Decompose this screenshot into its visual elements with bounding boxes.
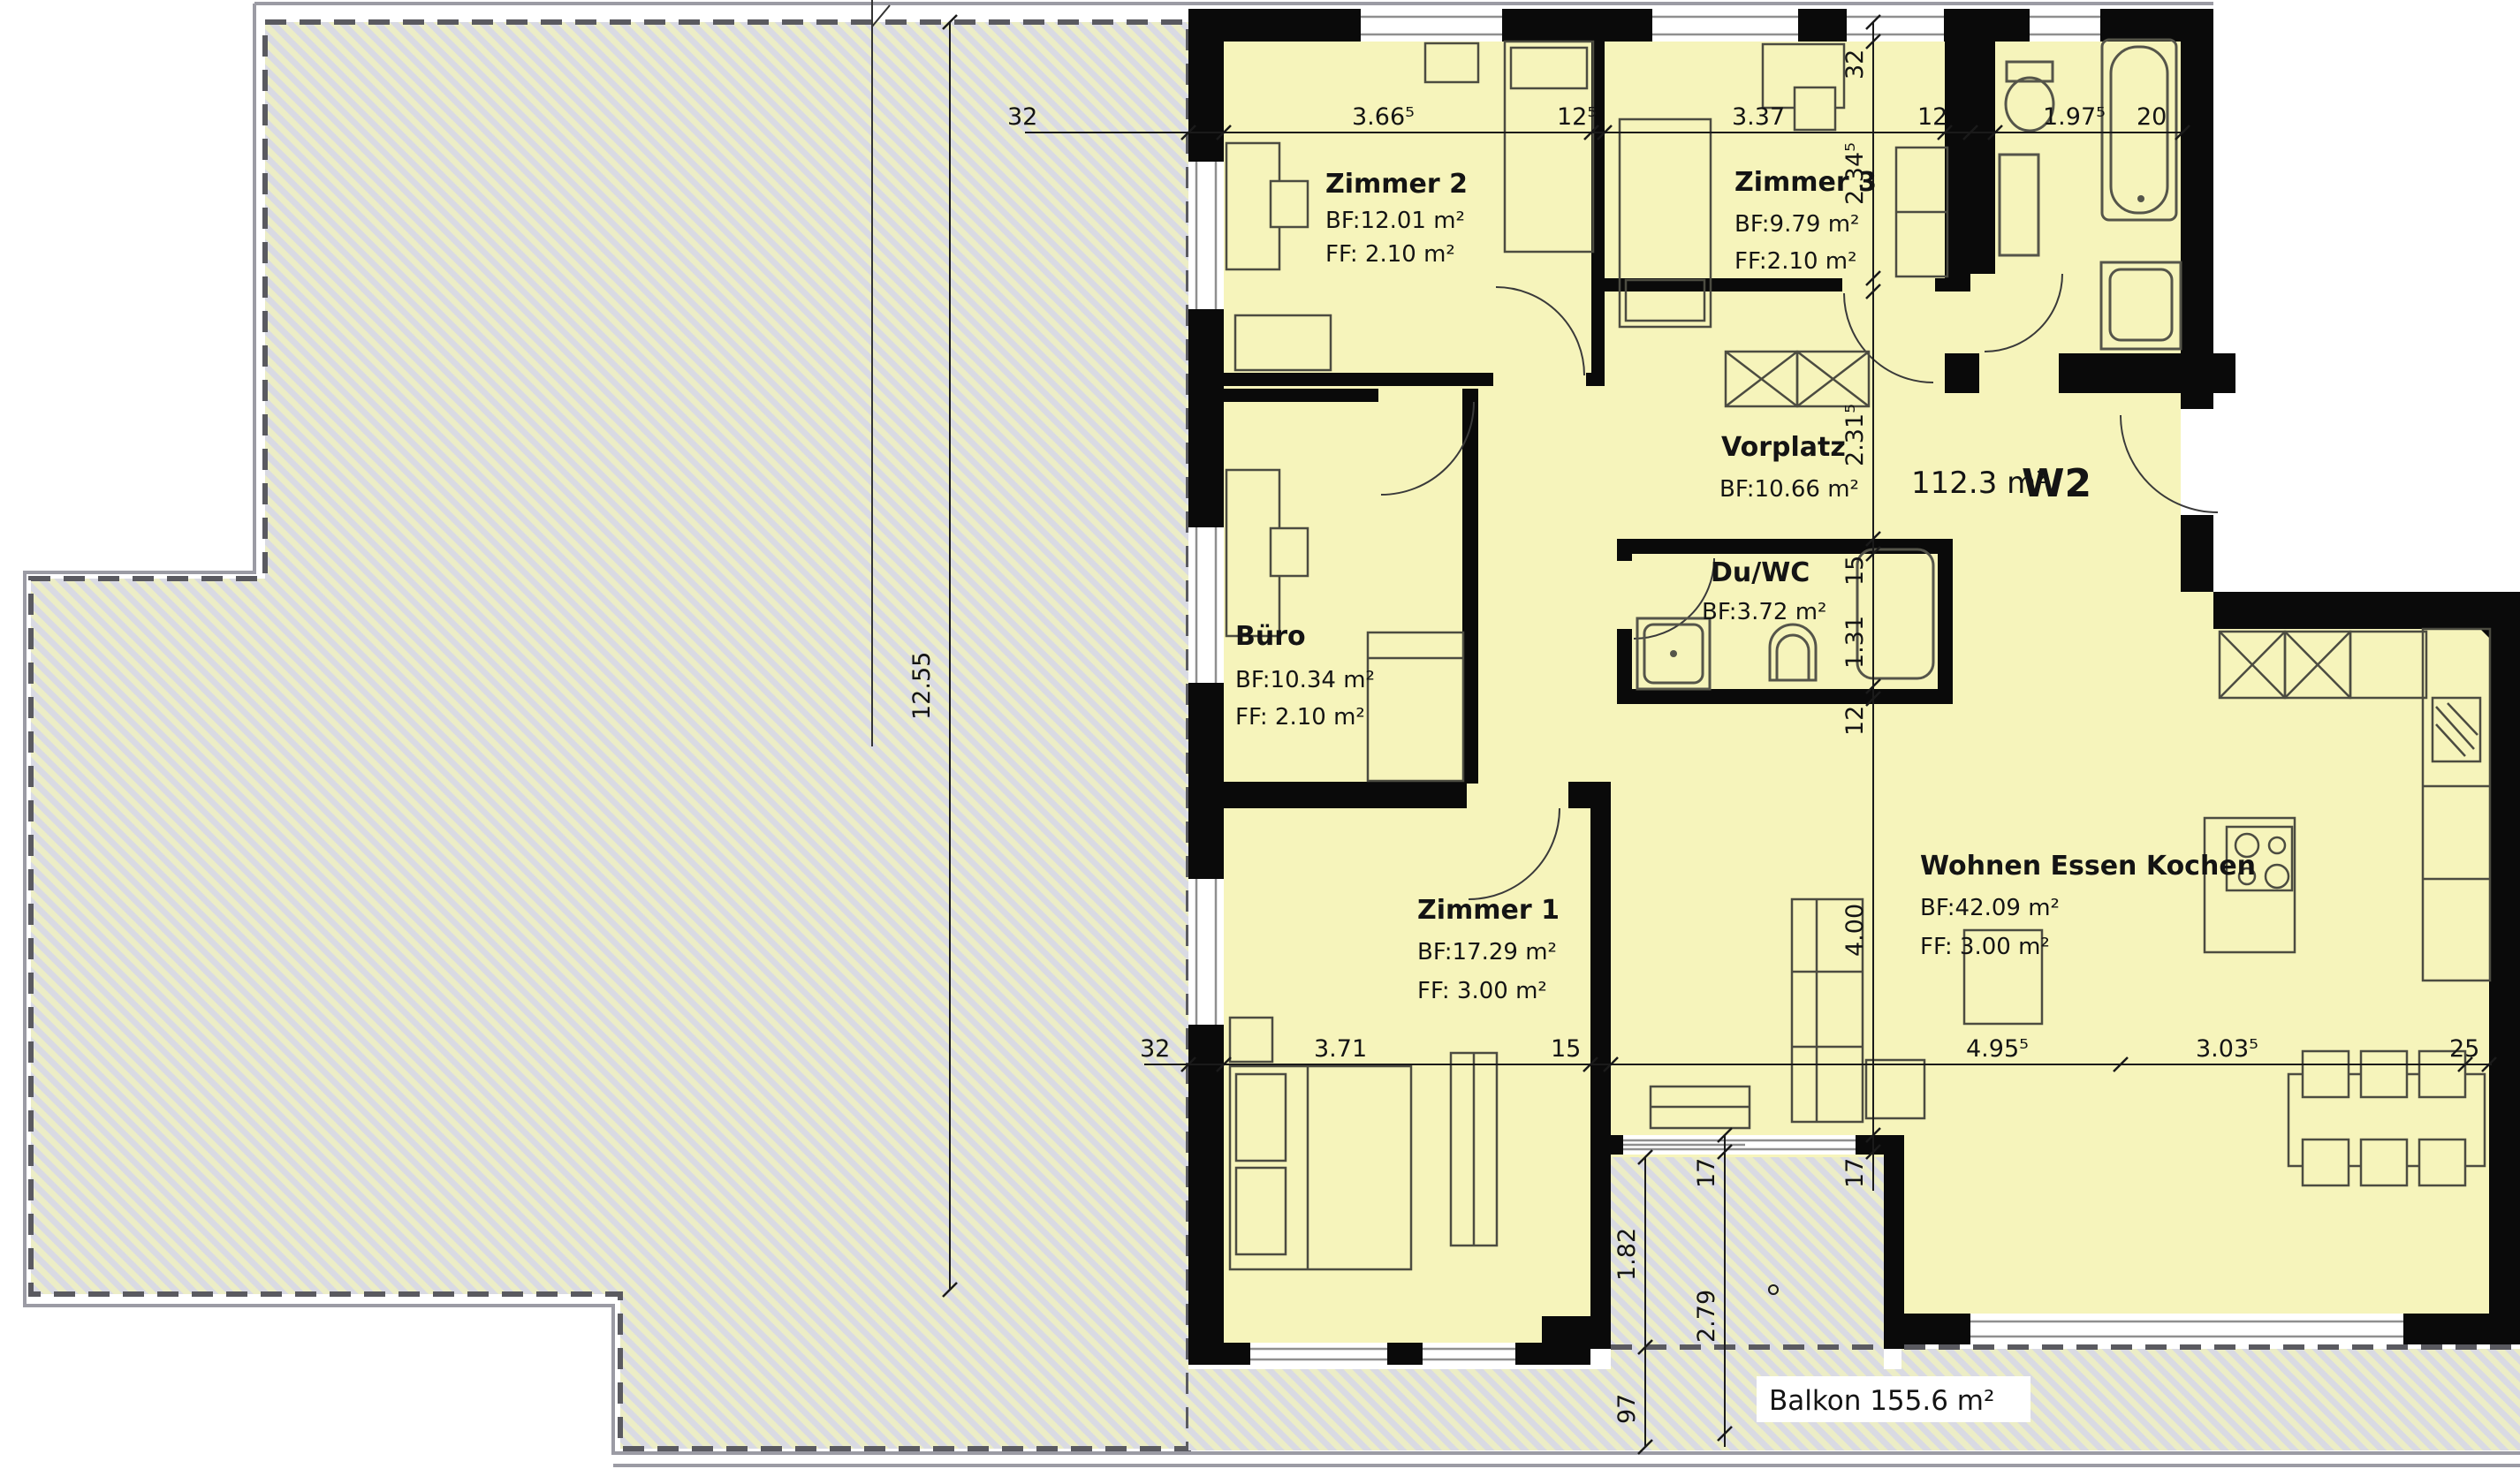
floorplan-drawing: 32 3.66⁵ 12⁵ 3.37 12 1.97⁵ 20 12.55 32 2… — [0, 0, 2520, 1469]
room-label-zimmer3: Zimmer 3 BF:9.79 m² FF:2.10 m² — [1734, 167, 1877, 275]
vorplatz-bf: BF:10.66 m² — [1719, 476, 1859, 503]
buero-title: Büro — [1235, 621, 1306, 652]
unit-number-label: W2 — [2022, 461, 2091, 506]
wall-kitchen-top — [2213, 592, 2520, 629]
window-zimmer1-bottom-1 — [1250, 1343, 1387, 1365]
buero-bf: BF:10.34 m² — [1235, 667, 1375, 693]
wall-buero-top-stub — [1462, 389, 1478, 402]
dim-left-1255: 12.55 — [908, 652, 936, 720]
dim-top-125: 12⁵ — [1557, 103, 1597, 131]
duwc-title: Du/WC — [1711, 557, 1810, 588]
dim-right-15: 15 — [1841, 556, 1869, 586]
dim-right-17: 17 — [1841, 1158, 1869, 1188]
dim-balcony-182: 1.82 — [1613, 1228, 1641, 1281]
zimmer1-title: Zimmer 1 — [1417, 895, 1560, 926]
wall-right — [2489, 629, 2520, 1344]
dim-right-32: 32 — [1841, 49, 1869, 80]
dim-bottom-32: 32 — [1140, 1035, 1170, 1063]
vorplatz-title: Vorplatz — [1721, 432, 1846, 463]
zimmer2-bf: BF:12.01 m² — [1325, 208, 1465, 234]
window-zimmer2-top — [1361, 9, 1502, 42]
wall-buero-top — [1224, 389, 1378, 402]
wall-zimmer3-right — [1945, 42, 1970, 292]
zimmer1-ff: FF: 3.00 m² — [1417, 978, 1547, 1004]
wall-zimmer2-bottom — [1224, 373, 1493, 386]
window-zimmer1-left — [1188, 879, 1224, 1025]
unit-label: 112.3 m² W2 — [1911, 461, 2091, 506]
window-bath-top — [2030, 9, 2100, 42]
wall-zimmer1-top-stub — [1568, 782, 1611, 808]
zimmer2-ff: FF: 2.10 m² — [1325, 241, 1455, 268]
terrace-area — [31, 22, 1188, 1449]
wall-nook-right — [1884, 1135, 1904, 1349]
wek-title: Wohnen Essen Kochen — [1920, 851, 2256, 882]
dining-chair-6 — [2419, 1140, 2465, 1185]
wall-bath-left — [1970, 42, 1995, 274]
wall-buero-right — [1462, 402, 1478, 784]
dim-balcony-279: 2.79 — [1693, 1290, 1720, 1343]
wall-zimmer1-top — [1224, 782, 1467, 808]
zimmer2-title: Zimmer 2 — [1325, 169, 1468, 200]
floorplan-page: 32 3.66⁵ 12⁵ 3.37 12 1.97⁵ 20 12.55 32 2… — [0, 0, 2520, 1469]
dim-top-32: 32 — [1007, 103, 1037, 131]
wall-bath-bottom-left — [1945, 353, 1979, 393]
zimmer3-chair — [1795, 87, 1835, 130]
buero-ff: FF: 2.10 m² — [1235, 704, 1365, 731]
dining-chair-5 — [2361, 1140, 2407, 1185]
dim-right-131: 1.31 — [1841, 616, 1869, 669]
zimmer1-bf: BF:17.29 m² — [1417, 939, 1557, 965]
dim-balcony-17: 17 — [1693, 1158, 1720, 1188]
room-label-zimmer1: Zimmer 1 BF:17.29 m² FF: 3.00 m² — [1417, 895, 1560, 1004]
wall-entry-right — [2181, 515, 2213, 592]
balcony-label-text: Balkon 155.6 m² — [1769, 1385, 1994, 1417]
balcony-nook — [1611, 1157, 1884, 1369]
wall-nook-left — [1590, 1135, 1611, 1349]
wek-bf: BF:42.09 m² — [1920, 895, 2060, 921]
dining-chair-1 — [2303, 1051, 2349, 1097]
dining-chair-2 — [2361, 1051, 2407, 1097]
dim-bottom-371: 3.71 — [1314, 1035, 1367, 1063]
wall-corner-zimmer1 — [1542, 1316, 1590, 1365]
wall-duwc-bottom — [1617, 689, 1953, 704]
dim-top-12: 12 — [1917, 103, 1947, 131]
dim-top-366: 3.66⁵ — [1352, 103, 1415, 131]
dim-bottom-4955: 4.95⁵ — [1966, 1035, 2029, 1063]
dining-chair-4 — [2303, 1140, 2349, 1185]
wall-slider-stub-left — [1611, 1135, 1623, 1155]
wall-duwc-left-upper — [1617, 539, 1632, 561]
wall-dining-bottom-left — [1904, 1314, 1970, 1344]
window-dining-bottom — [1970, 1314, 2403, 1344]
wek-ff: FF: 3.00 m² — [1920, 934, 2050, 960]
duwc-bf: BF:3.72 m² — [1702, 599, 1826, 625]
window-corridor-top — [1847, 9, 1944, 42]
zimmer3-ff: FF:2.10 m² — [1734, 248, 1857, 275]
wall-bath-right-upper — [2181, 9, 2213, 409]
terrace — [31, 22, 1188, 1449]
dim-balcony-97: 97 — [1613, 1394, 1641, 1424]
dim-bottom-15: 15 — [1551, 1035, 1581, 1063]
buero-chair — [1271, 528, 1308, 576]
dim-top-337: 3.37 — [1732, 103, 1785, 131]
wall-duwc-right — [1938, 539, 1953, 704]
dim-bottom-3035: 3.03⁵ — [2196, 1035, 2258, 1063]
duwc-shower-drain — [1670, 650, 1677, 657]
room-label-zimmer2: Zimmer 2 BF:12.01 m² FF: 2.10 m² — [1325, 169, 1468, 268]
dim-bottom-25: 25 — [2449, 1035, 2479, 1063]
bath-tub-drain — [2137, 195, 2144, 202]
wall-duwc-top — [1617, 539, 1953, 554]
window-zimmer2-left — [1188, 162, 1224, 309]
dim-top-20: 20 — [2137, 103, 2167, 131]
wall-dining-bottom-right — [2403, 1314, 2520, 1344]
dim-right-12: 12 — [1841, 706, 1869, 736]
window-zimmer3-top — [1652, 9, 1798, 42]
zimmer3-bf: BF:9.79 m² — [1734, 211, 1859, 238]
dim-top-1975: 1.97⁵ — [2043, 103, 2106, 131]
balcony-label: Balkon 155.6 m² — [1757, 1376, 2030, 1422]
zimmer2-chair — [1271, 181, 1308, 227]
dim-right-400: 4.00 — [1841, 904, 1869, 957]
wall-bath-bottom-right — [2059, 353, 2235, 393]
wall-zimmer1-right — [1590, 808, 1611, 1137]
window-zimmer1-bottom-2 — [1423, 1343, 1515, 1365]
zimmer3-title: Zimmer 3 — [1734, 167, 1877, 198]
window-buero-left — [1188, 527, 1224, 683]
entrance-opening — [2181, 409, 2213, 515]
